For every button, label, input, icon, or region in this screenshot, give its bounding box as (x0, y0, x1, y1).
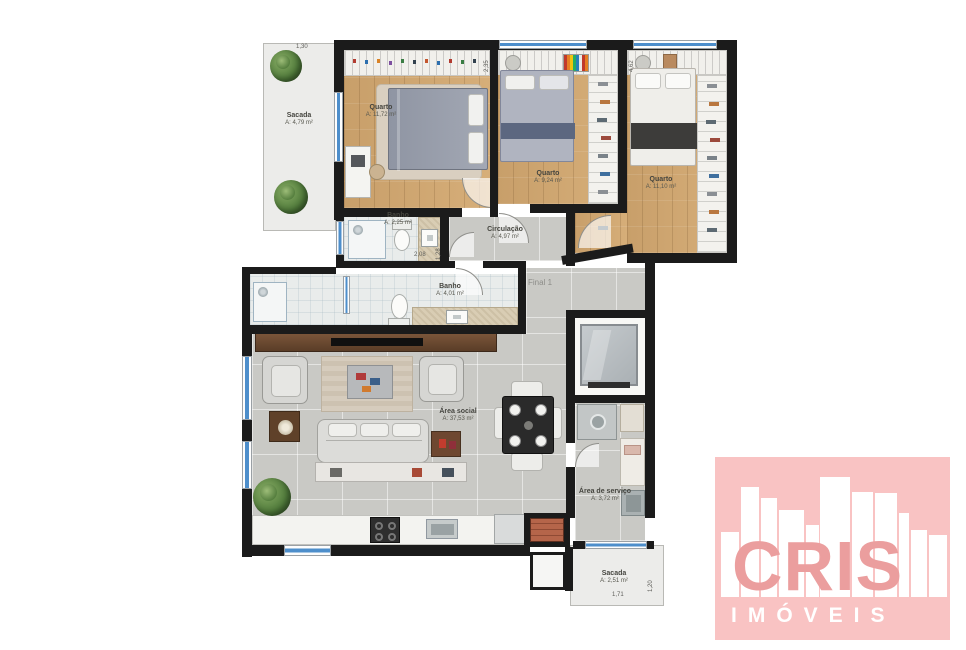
dimension-label: 4,62 (629, 60, 635, 72)
wall (627, 253, 737, 263)
burner (388, 522, 396, 530)
window (335, 93, 342, 161)
shaft-box (530, 552, 566, 590)
double-bed (388, 88, 488, 170)
service-shelf (620, 404, 644, 432)
dimension-label: 2,35 (484, 60, 490, 72)
room-area: A: 3,72 m² (564, 496, 646, 503)
wall (242, 325, 526, 334)
decor-item (330, 468, 342, 477)
logo-subtitle: IMÓVEIS (731, 604, 896, 628)
room-label-area-servico: Área de serviço A: 3,72 m² (564, 488, 646, 503)
glass-panel (580, 324, 638, 386)
building-silhouette (929, 535, 947, 597)
room-area: A: 11,10 m² (630, 184, 692, 191)
sink-inner (431, 524, 454, 535)
armchair (262, 356, 308, 404)
window (344, 277, 349, 313)
bed-throw (501, 123, 575, 139)
room-label-circulacao: Circulação A: 4,97 m² (470, 226, 540, 241)
burner (388, 533, 396, 541)
clothes-decoration (353, 59, 356, 63)
side-table (269, 411, 300, 442)
washer-door (590, 414, 606, 430)
wall (566, 310, 654, 318)
room-name: Banho (439, 283, 461, 290)
dimension-label: 1,30 (296, 44, 308, 50)
plant (253, 478, 291, 516)
pillow (505, 75, 535, 90)
wall (645, 263, 655, 518)
wall (518, 261, 526, 332)
room-label-banho2: Banho A: 4,01 m² (422, 283, 478, 298)
wall (618, 44, 627, 210)
decor-book (356, 373, 366, 380)
toilet (391, 294, 408, 319)
bed-throw (631, 123, 697, 149)
media-rack (315, 462, 467, 482)
unit-number-label: Final 1 (528, 278, 552, 287)
room-name: Área social (439, 408, 476, 415)
kitchen-sink (426, 519, 458, 539)
dimension-label: 2,08 (414, 252, 426, 258)
burner (375, 522, 383, 530)
room-area: A: 4,79 m² (272, 120, 326, 127)
room-name: Banho (387, 212, 409, 219)
window (337, 222, 343, 254)
decor-item (412, 468, 422, 477)
room-label-area-social: Área social A: 37,53 m² (424, 408, 492, 423)
service-counter (620, 438, 645, 486)
sofa-back-cushion (328, 423, 357, 437)
room-area: A: 2,51 m² (586, 578, 642, 585)
wall (336, 261, 455, 268)
wall (565, 547, 573, 591)
room-label-quarto1: Quarto A: 11,72 m² (350, 104, 412, 119)
pillow (468, 94, 484, 126)
room-label-quarto2: Quarto A: 9,24 m² (518, 170, 578, 185)
shower (253, 282, 287, 322)
decor-book (370, 378, 380, 385)
sofa-seat-line (326, 440, 422, 441)
dining-chair (511, 452, 543, 471)
room-label-sacada-bottom: Sacada A: 2,51 m² (586, 570, 642, 585)
window (243, 357, 251, 419)
stove (370, 517, 400, 543)
decor-item (442, 468, 454, 477)
armchair-cushion (271, 365, 301, 397)
desk-chair (369, 164, 385, 180)
window (500, 41, 586, 48)
armchair-cushion (428, 364, 457, 395)
building-silhouette (911, 530, 927, 597)
tv (331, 338, 423, 346)
bed-fold (397, 89, 400, 171)
room-area: A: 4,97 m² (470, 234, 540, 241)
toilet (394, 229, 410, 251)
plate (535, 404, 547, 416)
plant (270, 50, 302, 82)
armchair (419, 356, 464, 402)
wall (727, 40, 737, 263)
pouf (505, 55, 521, 71)
wall (242, 267, 336, 274)
room-area: A: 11,72 m² (350, 112, 412, 119)
room-name: Quarto (537, 170, 560, 177)
wall (566, 318, 575, 400)
decor-item (449, 441, 456, 449)
floorplan-page: Sacada A: 4,79 m² Quarto A: 11,72 m² Qua… (0, 0, 966, 650)
lamp (278, 420, 293, 435)
wall (483, 261, 518, 268)
glass-sheen (583, 330, 612, 380)
shoe-shelf (588, 75, 618, 204)
single-bed (630, 68, 696, 166)
wall (490, 44, 498, 217)
sofa-back-cushion (360, 423, 389, 437)
shoe-shelf (697, 75, 727, 253)
room-label-banho1: Banho A: 2,25 m² (372, 212, 424, 227)
wall (566, 403, 575, 443)
room-area: A: 37,53 m² (424, 416, 492, 423)
tv-console (255, 333, 497, 352)
burner (375, 533, 383, 541)
room-name: Sacada (287, 112, 312, 119)
plate (509, 404, 521, 416)
room-area: A: 9,24 m² (518, 178, 578, 185)
washing-machine (577, 404, 617, 440)
room-area: A: 2,25 m² (372, 220, 424, 227)
room-name: Quarto (650, 176, 673, 183)
plant (274, 180, 308, 214)
decor-book (362, 386, 371, 392)
shoes-decoration (707, 84, 717, 88)
wall (330, 545, 530, 556)
wall (242, 267, 250, 332)
shoes-decoration (598, 82, 608, 86)
room-name: Área de serviço (579, 488, 631, 495)
hallway-floor-c (526, 318, 566, 334)
centerpiece (524, 421, 533, 430)
dimension-label: 1,28 (436, 248, 442, 260)
desk (345, 146, 371, 198)
wardrobe (344, 50, 490, 76)
dimension-label: 1,20 (648, 580, 654, 592)
dimension-label: 1,71 (612, 592, 624, 598)
logo-wordmark: CRIS (732, 531, 903, 601)
room-name: Quarto (370, 104, 393, 111)
room-label-quarto3: Quarto A: 11,10 m² (630, 176, 692, 191)
room-area: A: 4,01 m² (422, 291, 478, 298)
dining-table (502, 396, 554, 454)
towels (624, 445, 641, 455)
wall (530, 204, 627, 213)
room-name: Circulação (487, 226, 523, 233)
wall (566, 395, 654, 403)
sofa (317, 419, 429, 463)
decor-item (439, 439, 446, 448)
plate (509, 435, 521, 447)
window (243, 442, 251, 488)
coffee-table (347, 365, 393, 399)
laptop (351, 155, 365, 167)
pillow (539, 75, 569, 90)
wall (242, 545, 285, 556)
sink-basin (446, 310, 468, 324)
room-label-sacada-top: Sacada A: 4,79 m² (272, 112, 326, 127)
sofa-back-cushion (392, 423, 421, 437)
pillow (635, 73, 661, 89)
agency-logo: CRIS IMÓVEIS (715, 457, 950, 640)
barbecue-grill (530, 518, 564, 542)
pillow (468, 132, 484, 164)
single-bed (500, 70, 574, 162)
window (634, 41, 716, 48)
dark-rail (588, 382, 630, 388)
accent-table (431, 431, 461, 457)
pillow (665, 73, 691, 89)
fridge (494, 514, 526, 544)
window (285, 546, 330, 555)
room-name: Sacada (602, 570, 627, 577)
plate (535, 435, 547, 447)
window (586, 542, 646, 548)
sink-basin (421, 229, 438, 247)
